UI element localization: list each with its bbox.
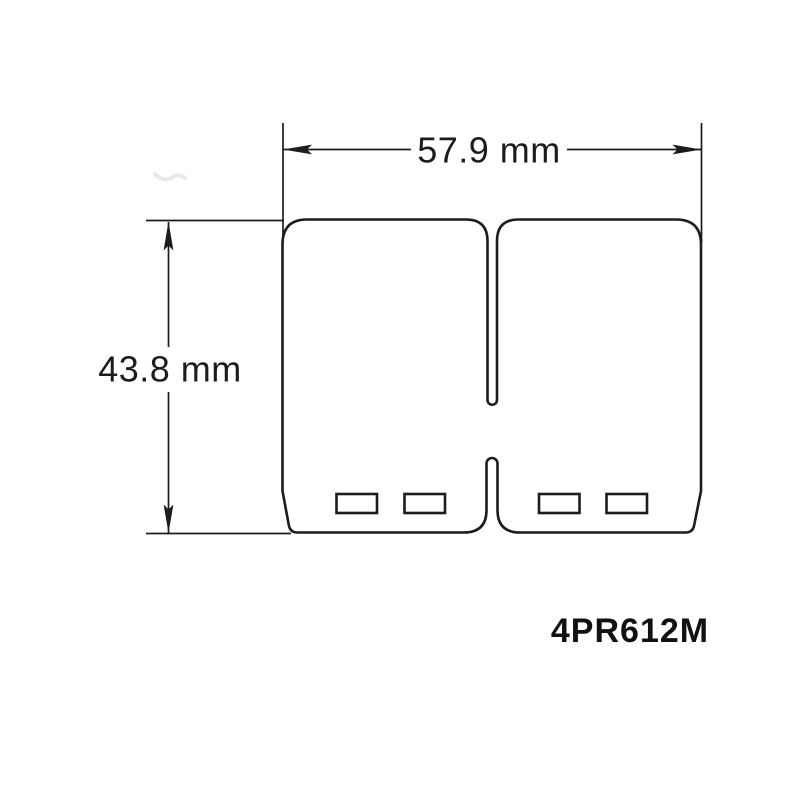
height-dimension-label: 43.8 mm [98,349,242,390]
drawing-page: 57.9 mm 43.8 mm 4PR612M [0,0,800,800]
reed-petal-diagram: 57.9 mm 43.8 mm 4PR612M [0,0,800,800]
scan-artifact-smudge [155,174,185,179]
width-dimension-label: 57.9 mm [417,130,561,171]
petal-outline [283,220,702,533]
alignment-slot-4 [607,494,648,513]
alignment-slot-2 [405,494,446,513]
alignment-slot-1 [337,494,378,513]
part-number: 4PR612M [551,612,709,650]
petal-outline-group [283,220,702,533]
alignment-slot-3 [539,494,580,513]
height-dimension-group: 43.8 mm [98,221,291,534]
